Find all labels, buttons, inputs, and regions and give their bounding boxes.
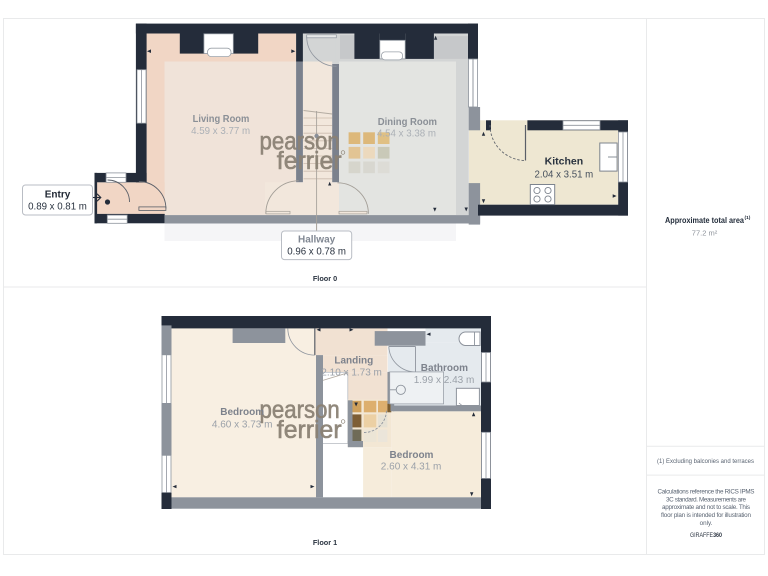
svg-text:approximate and not to scale.: approximate and not to scale. This bbox=[662, 504, 750, 511]
svg-text:Dining Room: Dining Room bbox=[378, 116, 437, 128]
svg-text:2.04 x 3.51 m: 2.04 x 3.51 m bbox=[535, 168, 594, 180]
svg-text:only.: only. bbox=[700, 520, 713, 527]
svg-text:4.60 x 3.73 m: 4.60 x 3.73 m bbox=[212, 419, 273, 430]
svg-text:3C standard. Measurements are: 3C standard. Measurements are bbox=[666, 496, 746, 503]
svg-text:77.2 m²: 77.2 m² bbox=[692, 229, 718, 238]
svg-text:(1): (1) bbox=[745, 215, 751, 221]
svg-text:2.10 x 1.73 m: 2.10 x 1.73 m bbox=[321, 368, 382, 379]
svg-text:2.60 x 4.31 m: 2.60 x 4.31 m bbox=[381, 462, 442, 473]
svg-text:Calculations reference the RIC: Calculations reference the RICS IPMS bbox=[658, 489, 755, 496]
svg-text:ferrier: ferrier bbox=[277, 147, 342, 175]
svg-text:GIRAFFE360: GIRAFFE360 bbox=[690, 532, 722, 539]
svg-text:Floor 0: Floor 0 bbox=[313, 274, 337, 283]
svg-text:4.54 x 3.38 m: 4.54 x 3.38 m bbox=[377, 128, 436, 140]
svg-text:Hallway: Hallway bbox=[298, 234, 336, 245]
svg-text:Approximate total area: Approximate total area bbox=[665, 216, 744, 225]
svg-text:Floor 1: Floor 1 bbox=[313, 538, 337, 547]
svg-text:Kitchen: Kitchen bbox=[545, 156, 584, 168]
svg-text:Bathroom: Bathroom bbox=[421, 363, 468, 374]
svg-text:(1) Excluding balconies and te: (1) Excluding balconies and terraces bbox=[657, 458, 754, 465]
svg-text:Bedroom: Bedroom bbox=[220, 407, 264, 418]
svg-text:ferrier: ferrier bbox=[277, 416, 342, 444]
svg-text:0.96 x 0.78 m: 0.96 x 0.78 m bbox=[287, 246, 346, 257]
svg-text:0.89 x 0.81 m: 0.89 x 0.81 m bbox=[28, 202, 87, 213]
svg-text:Landing: Landing bbox=[334, 356, 373, 367]
svg-text:Living Room: Living Room bbox=[193, 113, 250, 125]
svg-text:1.99 x 2.43 m: 1.99 x 2.43 m bbox=[414, 375, 475, 386]
svg-text:Bedroom: Bedroom bbox=[390, 450, 434, 461]
svg-text:floor plan is intended for ill: floor plan is intended for illustration bbox=[661, 512, 751, 519]
svg-text:4.59 x 3.77 m: 4.59 x 3.77 m bbox=[191, 125, 250, 137]
svg-text:Entry: Entry bbox=[45, 190, 71, 201]
